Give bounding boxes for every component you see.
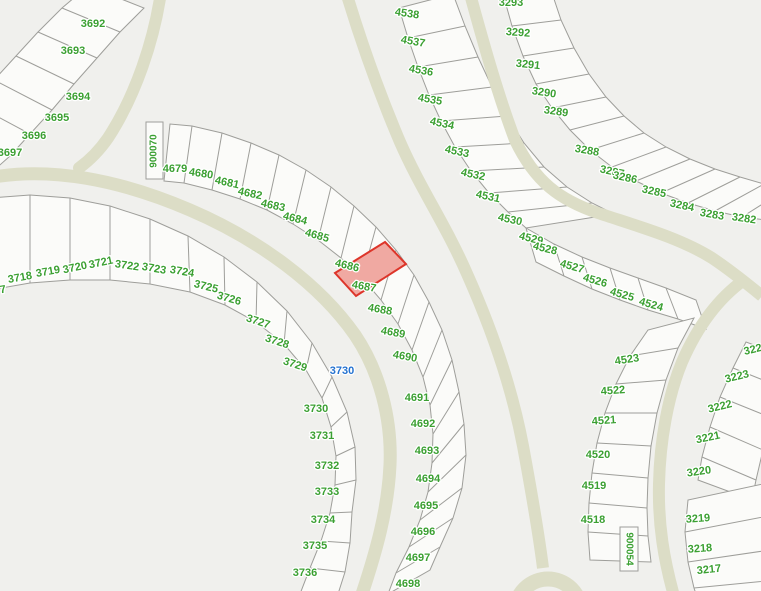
parcel-label[interactable]: 3730	[330, 365, 354, 377]
parcel-label[interactable]: 3732	[315, 460, 339, 472]
parcel-label[interactable]: 4698	[396, 578, 420, 590]
parcel-label[interactable]: 3694	[66, 91, 91, 103]
parcel-label[interactable]: 4519	[582, 480, 606, 492]
parcel-label[interactable]: 4521	[591, 414, 616, 428]
tract-parcel-label[interactable]: 900054	[623, 532, 634, 566]
parcel-label[interactable]: 4538	[394, 6, 420, 21]
parcel-label[interactable]: 4693	[415, 445, 439, 457]
tract-parcel-label[interactable]: 900070	[149, 134, 160, 168]
parcel-label[interactable]: 4518	[581, 514, 605, 526]
parcel-label[interactable]: 3736	[293, 567, 317, 579]
parcel-label[interactable]: 4692	[411, 418, 435, 430]
parcel-label[interactable]: 4694	[416, 473, 441, 485]
parcel-label[interactable]: 3730	[304, 403, 328, 415]
parcel-label[interactable]: 3219	[685, 512, 710, 526]
parcel-label[interactable]: 3731	[310, 430, 334, 442]
parcel-label[interactable]: 3696	[22, 130, 46, 142]
parcel-label[interactable]: 3733	[315, 486, 339, 498]
parcel-label[interactable]: 3693	[61, 45, 85, 57]
parcel-label[interactable]: 3735	[303, 540, 327, 552]
parcel-block[interactable]	[0, 195, 356, 591]
parcel-label[interactable]: 3289	[543, 104, 569, 119]
roundabout	[515, 579, 581, 591]
parcel-label[interactable]: 3697	[0, 147, 22, 159]
parcel-label[interactable]: 3692	[81, 18, 105, 30]
parcel-label[interactable]: 4696	[411, 526, 435, 538]
parcel-label[interactable]: 3734	[311, 514, 336, 526]
map-viewport[interactable]: 900070900054 369236933694369536963697737…	[0, 0, 761, 591]
parcel-label[interactable]: 3695	[45, 112, 69, 124]
parcel-label[interactable]: 4522	[600, 384, 625, 398]
parcel-map[interactable]: 900070900054 369236933694369536963697737…	[0, 0, 761, 591]
parcel-label[interactable]: 4679	[163, 163, 187, 175]
parcel-label[interactable]: 4695	[414, 500, 438, 512]
parcel-label[interactable]: 3292	[505, 26, 530, 40]
parcel-label[interactable]: 3218	[687, 542, 712, 556]
parcel-label[interactable]: 3217	[696, 563, 722, 577]
parcel-label[interactable]: 4520	[586, 449, 610, 461]
parcel-label[interactable]: 3293	[499, 0, 523, 9]
parcel-label[interactable]: 3291	[515, 58, 541, 72]
parcel-label[interactable]: 3282	[731, 211, 757, 226]
parcel-label[interactable]: 3290	[531, 85, 557, 100]
parcel-label[interactable]: 4691	[405, 392, 429, 404]
parcel-label[interactable]: 4697	[406, 552, 430, 564]
